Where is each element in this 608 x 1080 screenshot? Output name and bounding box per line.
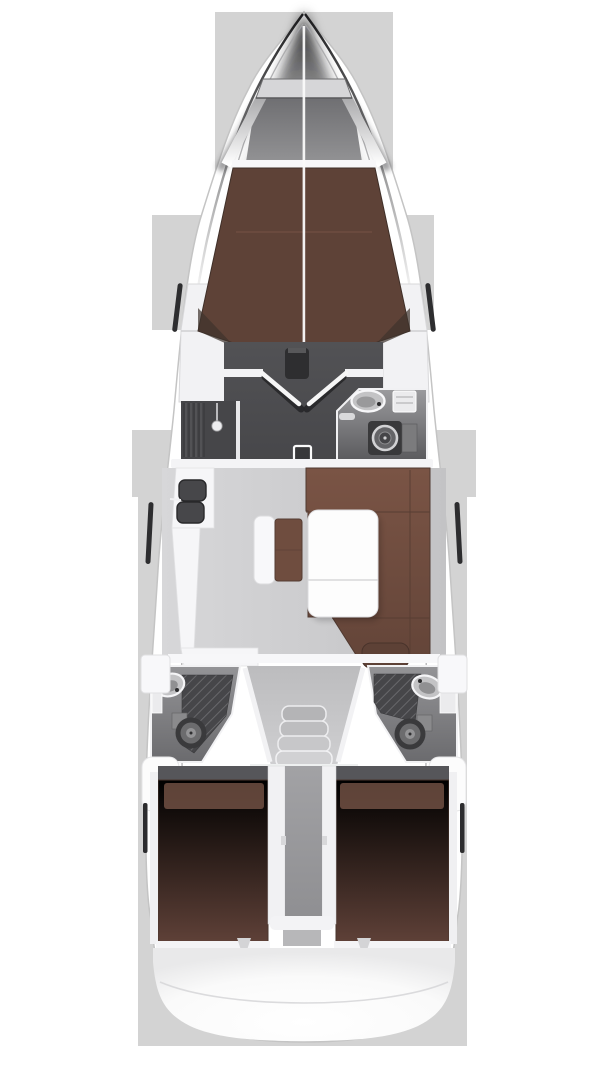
aft-bulkhead	[168, 654, 440, 663]
stern-platform	[153, 948, 455, 1041]
layout-canvas	[0, 0, 608, 1080]
mast-step-highlight	[288, 348, 306, 353]
aft-head-starboard-toilet-dot	[409, 733, 412, 736]
cabin-wall-stub-right	[345, 369, 383, 377]
saloon-bulkhead	[171, 459, 433, 468]
aft-berth-starboard-pillows	[340, 783, 444, 809]
aft-head-port-toilet-dot	[190, 732, 193, 735]
deck-locker-starboard	[438, 655, 467, 693]
aft-cabin-starboard-sidewall	[449, 772, 457, 944]
yacht-layout-plan	[0, 0, 608, 1080]
engine-compartment	[285, 766, 322, 918]
forward-head-locker	[402, 424, 417, 452]
forward-head-faucet-icon	[377, 402, 381, 406]
galley-sink-1	[179, 480, 206, 501]
divider-notch-left	[281, 836, 286, 845]
aft-cabins	[150, 766, 457, 953]
stair-step-2	[280, 721, 328, 737]
aft-cabin-port-sidewall	[150, 772, 158, 944]
island-bench	[254, 516, 275, 584]
stair-step-3	[278, 736, 330, 752]
cabin-wall-stub-left	[224, 369, 263, 377]
shower-partition	[236, 401, 240, 459]
forward-head	[337, 389, 427, 462]
divider-aft-wall	[270, 916, 334, 930]
galley-sink-2	[177, 502, 204, 523]
towel-bar	[339, 413, 355, 420]
deck-locker-port	[141, 655, 170, 693]
divider-notch-right	[322, 836, 327, 845]
saloon	[162, 468, 446, 668]
centerline-seam	[303, 26, 306, 350]
aft-head-starboard-faucet-icon	[418, 679, 422, 683]
shower-stall	[181, 401, 240, 459]
aft-head-port-faucet-icon	[175, 688, 179, 692]
hull-window-port-3	[143, 803, 148, 853]
saloon-table	[308, 510, 378, 617]
divider-foot	[283, 930, 321, 946]
shower-head-icon	[212, 421, 222, 431]
stair-step-1	[282, 706, 326, 722]
transom-surface	[153, 948, 455, 1041]
aft-berth-port-pillows	[164, 783, 264, 809]
hull-window-starboard-3	[460, 803, 465, 853]
galley-faucet-icon	[170, 499, 181, 500]
forward-head-cabinet	[393, 391, 416, 412]
forward-head-sink-basin	[357, 397, 376, 408]
shower-grate	[183, 403, 205, 457]
forward-head-toilet-dot	[383, 436, 386, 439]
